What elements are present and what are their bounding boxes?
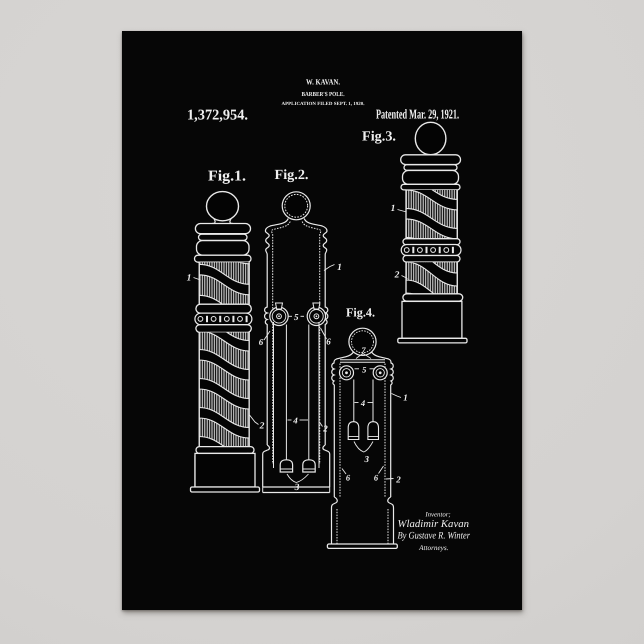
svg-text:1,372,954.: 1,372,954. bbox=[187, 108, 248, 124]
svg-text:5: 5 bbox=[294, 312, 299, 322]
svg-text:3: 3 bbox=[363, 454, 369, 464]
svg-text:1: 1 bbox=[391, 204, 396, 214]
svg-text:1: 1 bbox=[187, 274, 192, 284]
svg-text:Inventor;: Inventor; bbox=[424, 512, 450, 519]
svg-text:2: 2 bbox=[322, 424, 328, 434]
svg-text:Fig.4.: Fig.4. bbox=[346, 306, 375, 320]
svg-text:4: 4 bbox=[360, 398, 365, 408]
svg-text:Attorneys.: Attorneys. bbox=[418, 544, 449, 552]
svg-text:By Gustave R. Winter: By Gustave R. Winter bbox=[398, 531, 471, 542]
svg-text:6: 6 bbox=[326, 337, 331, 347]
svg-text:5: 5 bbox=[362, 364, 367, 374]
svg-text:1: 1 bbox=[403, 393, 408, 403]
svg-text:1: 1 bbox=[337, 263, 342, 273]
svg-text:BARBER'S POLE.: BARBER'S POLE. bbox=[302, 91, 345, 98]
svg-text:6: 6 bbox=[259, 337, 264, 347]
svg-text:Fig.2.: Fig.2. bbox=[275, 168, 309, 183]
svg-text:6: 6 bbox=[374, 473, 379, 483]
svg-text:4: 4 bbox=[292, 416, 298, 426]
svg-text:Fig.3.: Fig.3. bbox=[362, 130, 396, 145]
svg-text:2: 2 bbox=[259, 422, 265, 432]
svg-text:2: 2 bbox=[394, 271, 400, 281]
svg-text:3: 3 bbox=[294, 483, 300, 493]
svg-text:Fig.1.: Fig.1. bbox=[208, 169, 246, 185]
svg-text:Wladimir Kavan: Wladimir Kavan bbox=[398, 519, 470, 530]
svg-text:APPLICATION FILED SEPT. 1, 192: APPLICATION FILED SEPT. 1, 1920. bbox=[282, 101, 365, 107]
svg-text:6: 6 bbox=[346, 473, 351, 483]
svg-text:2: 2 bbox=[395, 475, 401, 485]
svg-text:Patented Mar. 29, 1921.: Patented Mar. 29, 1921. bbox=[376, 106, 459, 121]
svg-text:W. KAVAN.: W. KAVAN. bbox=[306, 78, 340, 87]
